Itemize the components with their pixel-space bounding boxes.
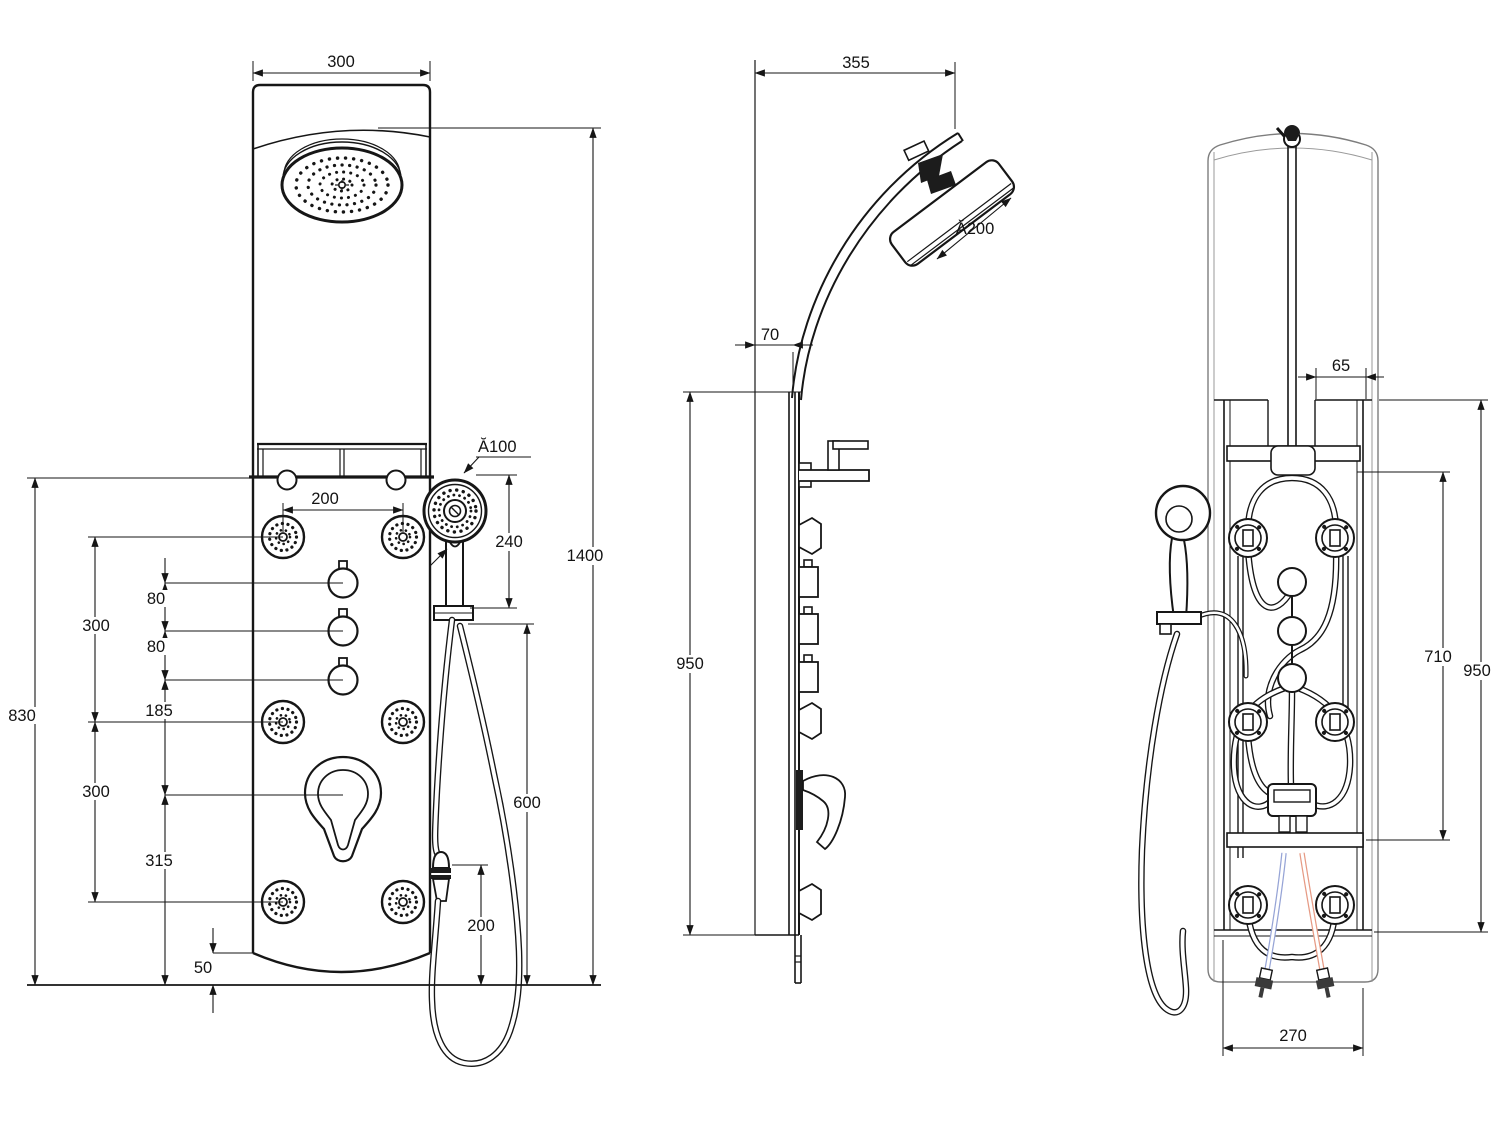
- dim-jet-span-lower: 300: [82, 783, 110, 801]
- dim-pipe-to-edge: 65: [1332, 357, 1350, 375]
- mixer-handle: [305, 757, 381, 861]
- body-jet: [382, 701, 424, 743]
- jet-side-profile: [799, 703, 821, 739]
- jet-fitting-back: [1313, 516, 1357, 560]
- dim-handshower-diameter: Ă100: [478, 437, 517, 456]
- bottom-bracket: [1227, 833, 1363, 847]
- dim-back-panel-height: 950: [1463, 662, 1491, 680]
- jet-side-profile: [799, 884, 821, 920]
- hand-shower-hose-back: [1141, 634, 1186, 1012]
- control-knob: [329, 561, 358, 598]
- dim-total-height: 1400: [567, 547, 604, 565]
- front-panel-top-curve: [253, 130, 430, 149]
- valve-back: [1278, 664, 1306, 692]
- dim-side-panel-height: 950: [676, 655, 704, 673]
- jet-fitting-back: [1226, 700, 1270, 744]
- valve-back: [1278, 617, 1306, 645]
- body-jet: [382, 881, 424, 923]
- back-panel-shell: [1208, 134, 1378, 983]
- knob-side-profile: [799, 560, 818, 597]
- dim-arm-reach: 355: [842, 54, 870, 72]
- back-view: 65 710 950 270: [1141, 125, 1500, 1056]
- shower-panel-technical-drawing: 300 200 Ă100 240 1400 80 80 185 315 300 …: [0, 0, 1500, 1125]
- jet-fitting-back: [1226, 883, 1270, 927]
- dim-base-lip: 50: [194, 959, 212, 977]
- control-knob: [329, 658, 358, 695]
- dim-hose-drop: 600: [513, 794, 541, 812]
- dim-panel-depth: 70: [761, 326, 779, 344]
- jet-side-profile: [799, 518, 821, 554]
- hand-shower: [424, 480, 519, 1064]
- knob-side-profile: [799, 607, 818, 644]
- rain-head-side: [886, 157, 1017, 270]
- mixer-lever-side: [796, 770, 845, 849]
- dim-knob-gap-top: 80: [147, 590, 165, 608]
- dim-knob-gap-bottom: 80: [147, 638, 165, 656]
- cold-water-hose: [1253, 853, 1284, 999]
- dim-hose-clearance: 200: [467, 917, 495, 935]
- dim-jet-spacing: 200: [311, 490, 339, 508]
- rain-shower-head: [282, 139, 402, 222]
- valve-back: [1278, 568, 1306, 596]
- dim-base-width: 270: [1279, 1027, 1307, 1045]
- jet-fitting-back: [1226, 516, 1270, 560]
- hand-shower-holder-back: [1157, 612, 1201, 624]
- front-panel-bottom-curve: [253, 953, 430, 972]
- front-view: 300 200 Ă100 240 1400 80 80 185 315 300 …: [2, 53, 609, 1064]
- shelf-side-profile: [799, 441, 869, 487]
- control-knob: [329, 609, 358, 646]
- dim-bracket-span: 710: [1424, 648, 1452, 666]
- dim-panel-width: 300: [327, 53, 355, 71]
- storage-shelf: [249, 444, 434, 490]
- dim-head-diameter: Ă200: [956, 219, 995, 238]
- dim-mixer-to-base: 315: [145, 852, 173, 870]
- hose-connector: [433, 852, 449, 868]
- jet-fitting-back: [1313, 883, 1357, 927]
- side-view: 355 70 Ă200 950: [667, 54, 1018, 983]
- knob-side-profile: [799, 655, 818, 692]
- dim-knob-to-mixer: 185: [145, 702, 173, 720]
- riser-pipe: [1277, 125, 1300, 446]
- drawing-canvas: 300 200 Ă100 240 1400 80 80 185 315 300 …: [0, 0, 1500, 1125]
- dim-body-height: 830: [8, 707, 36, 725]
- dim-handshower-offset: 240: [495, 533, 523, 551]
- dim-jet-span-upper: 300: [82, 617, 110, 635]
